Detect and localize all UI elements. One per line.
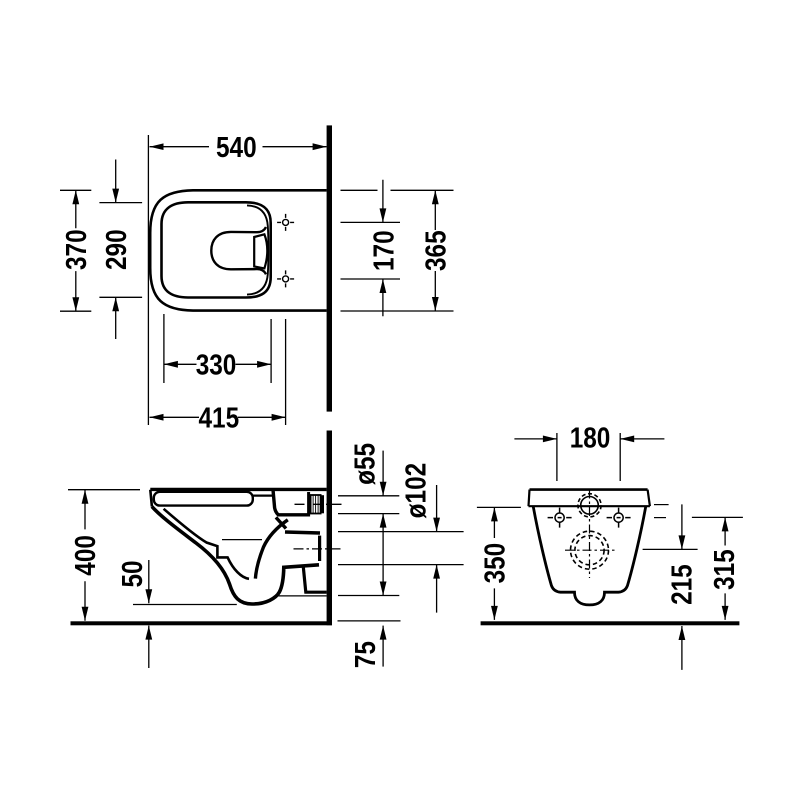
svg-text:415: 415 — [198, 402, 239, 434]
svg-text:ø102: ø102 — [399, 463, 431, 519]
svg-text:215: 215 — [665, 564, 697, 605]
svg-text:365: 365 — [420, 230, 452, 271]
svg-text:315: 315 — [708, 549, 740, 590]
svg-text:400: 400 — [69, 535, 101, 576]
svg-text:330: 330 — [196, 349, 237, 381]
svg-text:290: 290 — [100, 229, 132, 270]
svg-text:75: 75 — [349, 641, 381, 668]
svg-text:370: 370 — [60, 229, 92, 270]
svg-text:170: 170 — [367, 230, 399, 271]
svg-text:540: 540 — [216, 131, 257, 163]
svg-text:ø55: ø55 — [349, 443, 381, 485]
svg-text:350: 350 — [478, 543, 510, 584]
svg-text:50: 50 — [116, 560, 148, 587]
svg-text:180: 180 — [570, 422, 611, 454]
